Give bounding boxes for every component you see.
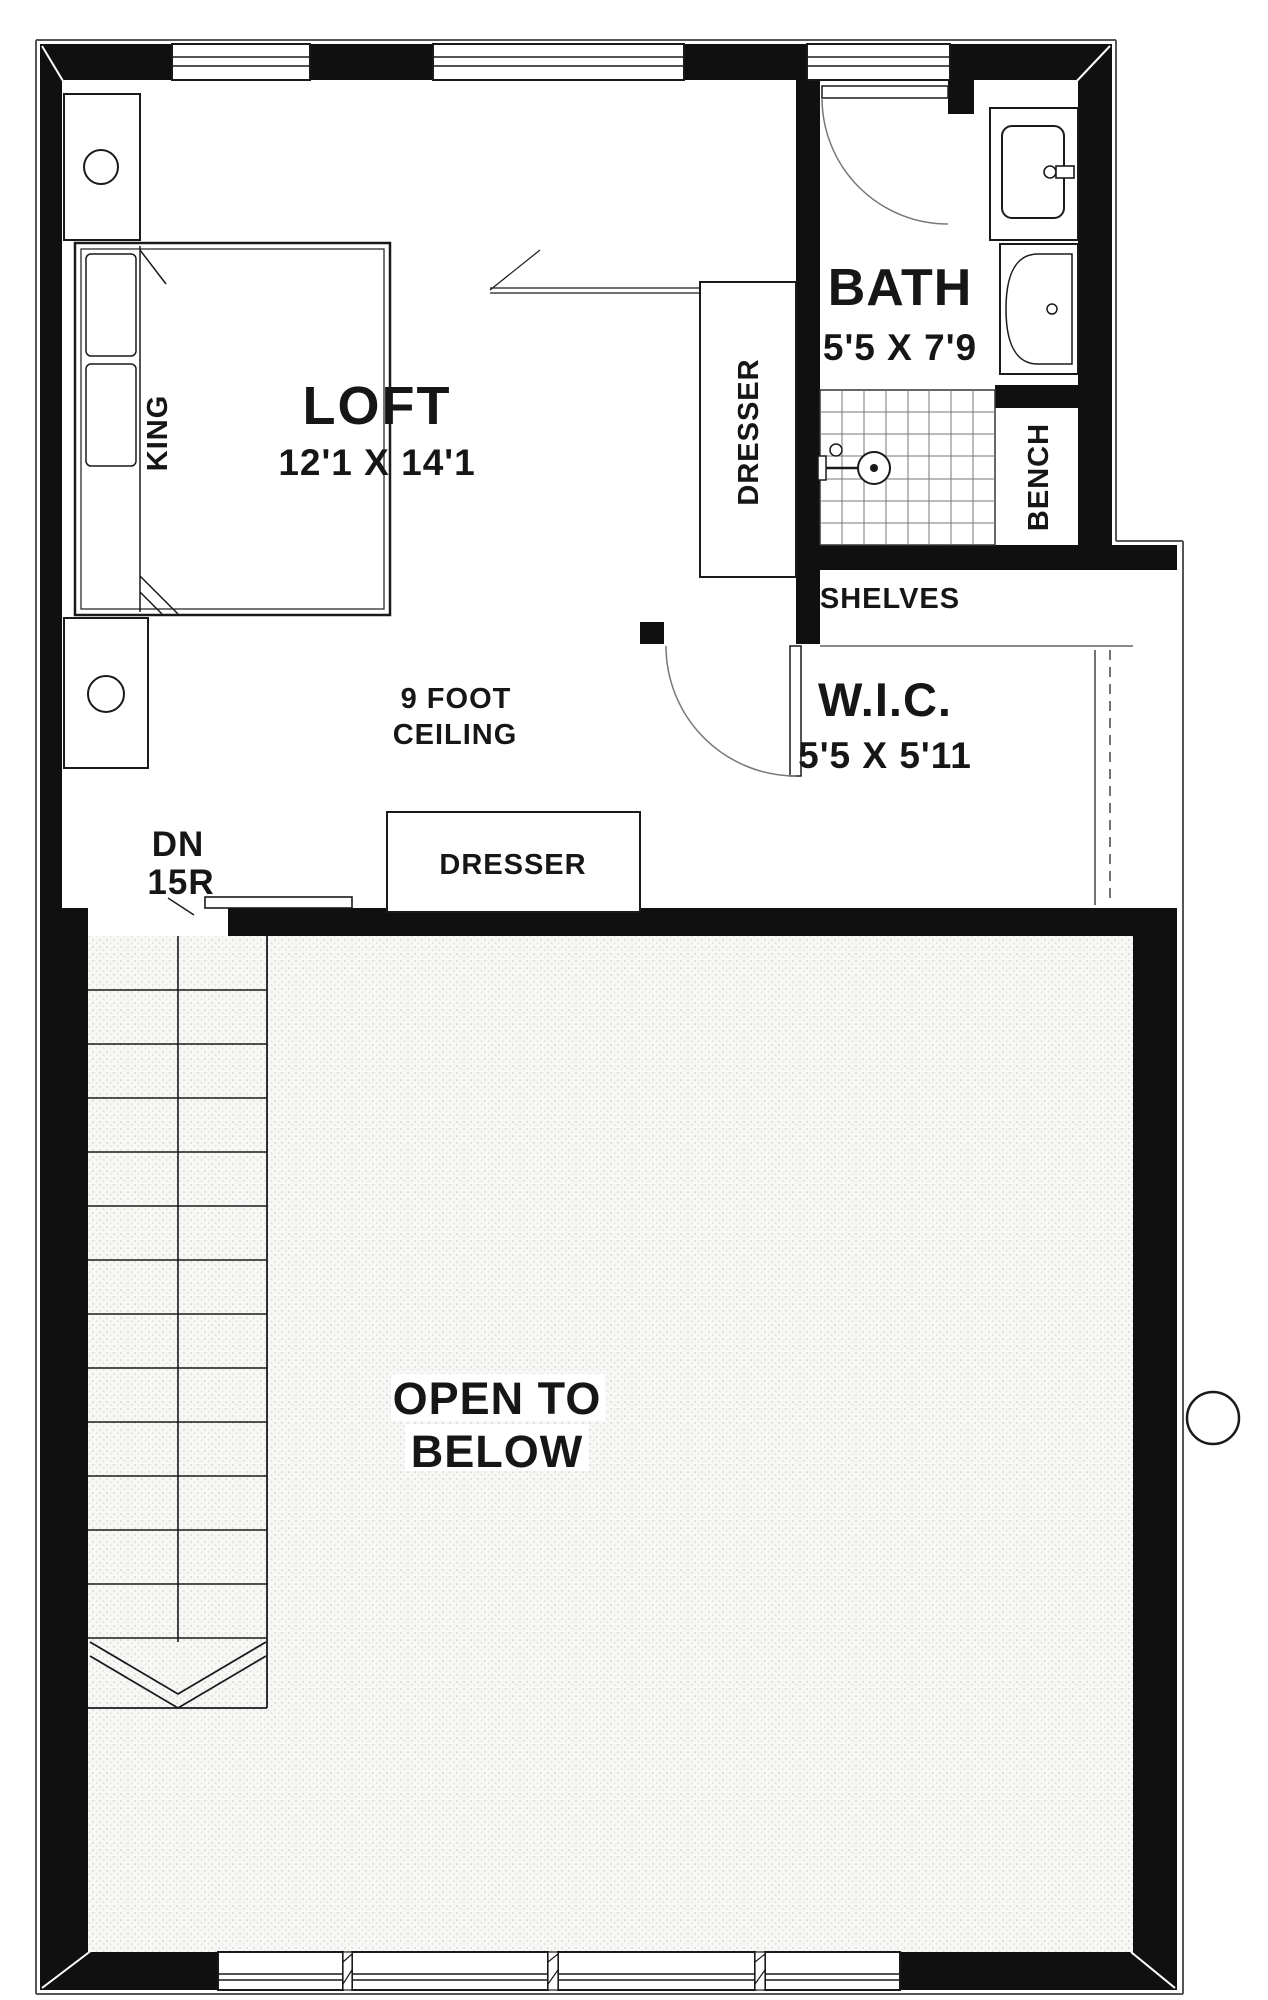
door-knob-marker-icon	[1187, 1392, 1239, 1444]
open-below-line1: OPEN TO	[393, 1373, 602, 1424]
bath-label: BATH	[828, 259, 973, 317]
bath-door-swing-arc	[822, 98, 948, 224]
wall-jog-shower-shelves	[796, 545, 1177, 570]
wall-bath-door-jamb	[948, 80, 974, 114]
stairs-riser-label: 15R	[147, 863, 214, 902]
open-to-below-floor	[88, 936, 1133, 1952]
bath-dims: 5'5 X 7'9	[823, 327, 977, 368]
wall-left-upper	[40, 44, 62, 908]
open-below-line2: BELOW	[411, 1426, 583, 1477]
loft-label: LOFT	[303, 376, 452, 436]
low-dresser-label: DRESSER	[439, 849, 586, 881]
lamp-icon	[84, 150, 118, 184]
wall-balcony-half	[228, 908, 1177, 936]
floor-plan-drawing: KING DRESSER DRESSER	[0, 0, 1268, 2000]
floor-plan-page: KING DRESSER DRESSER	[0, 0, 1268, 2000]
window-top-2	[433, 44, 684, 80]
bath-door-leaf	[822, 86, 948, 98]
window-top-3	[807, 44, 950, 80]
wall-right-upper	[1078, 44, 1112, 545]
wall-left-lower	[40, 908, 88, 1952]
wall-bath-divider	[796, 80, 820, 644]
shelves-label: SHELVES	[820, 583, 960, 615]
ceiling-note-line2: CEILING	[393, 719, 518, 751]
top-windows	[172, 44, 950, 80]
bath-door	[822, 86, 948, 224]
lamp-icon	[88, 676, 124, 712]
wic-dims: 5'5 X 5'11	[798, 735, 972, 776]
open-below-label: OPEN TO BELOW	[391, 1373, 605, 1477]
sink-faucet-icon	[1044, 166, 1056, 178]
bottom-windows	[218, 1952, 900, 1990]
stairs-dn-label: DN	[152, 825, 205, 864]
wic-door-swing-arc	[666, 646, 796, 776]
ceiling-note-line1: 9 FOOT	[401, 683, 512, 715]
loft-dims: 12'1 X 14'1	[278, 442, 475, 483]
low-dresser: DRESSER	[387, 812, 640, 912]
bed-label: KING	[142, 395, 174, 472]
wic-label: W.I.C.	[818, 673, 952, 726]
balcony-railing	[205, 897, 352, 908]
nightstand-bottom	[64, 618, 148, 768]
window-top-1	[172, 44, 310, 80]
wall-bench-stub	[995, 385, 1078, 408]
shower	[818, 390, 995, 545]
tall-dresser: DRESSER	[700, 282, 796, 577]
tub-drain-icon	[1047, 304, 1057, 314]
bathtub	[1000, 244, 1078, 374]
wall-wic-stub	[640, 622, 664, 644]
nightstand-top	[64, 94, 140, 240]
ceiling-break-line	[490, 250, 700, 293]
sink-vanity	[990, 108, 1078, 240]
tall-dresser-label: DRESSER	[733, 358, 765, 505]
bench-label: BENCH	[1023, 423, 1055, 531]
wall-right-lower	[1133, 908, 1177, 1990]
wic-door	[666, 646, 801, 776]
